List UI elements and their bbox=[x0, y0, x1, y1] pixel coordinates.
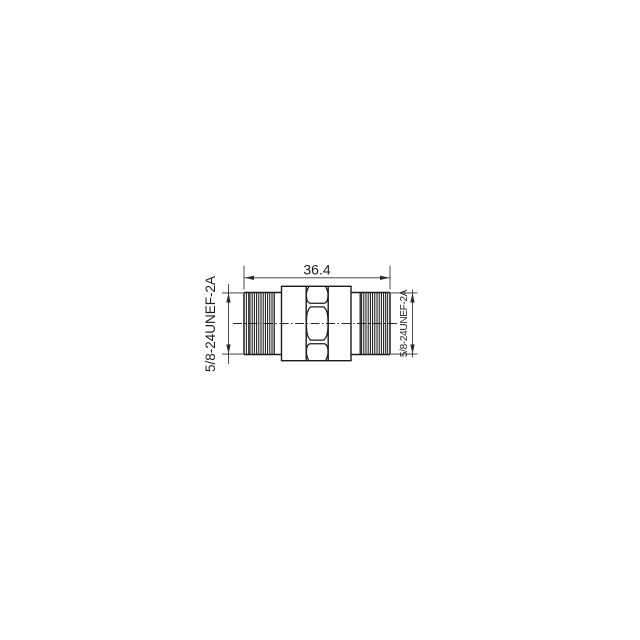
right-thread-spec-label: 5/8-24UNEF-2A bbox=[399, 289, 410, 357]
overall-dim-arrow-left bbox=[245, 276, 254, 280]
left-dim-arrow-down bbox=[226, 345, 230, 354]
dimension-overall-length: 36.4 bbox=[244, 262, 390, 290]
drawing-canvas: 36.4 5/8-24UNEF-2A 5/8-24UNEF-2A bbox=[0, 0, 640, 640]
overall-length-label: 36.4 bbox=[303, 262, 330, 278]
left-dim-arrow-up bbox=[226, 293, 230, 302]
technical-drawing: 36.4 5/8-24UNEF-2A 5/8-24UNEF-2A bbox=[0, 0, 640, 640]
overall-dim-arrow-right bbox=[380, 276, 389, 280]
hex-top-facet-arc bbox=[306, 287, 328, 303]
right-dim-arrow-up bbox=[410, 293, 414, 302]
left-thread-spec-label: 5/8-24UNEF-2A bbox=[203, 276, 218, 372]
hex-bottom-facet-arc bbox=[306, 344, 328, 360]
right-dim-arrow-down bbox=[410, 345, 414, 354]
dimension-left-thread: 5/8-24UNEF-2A bbox=[203, 276, 243, 372]
